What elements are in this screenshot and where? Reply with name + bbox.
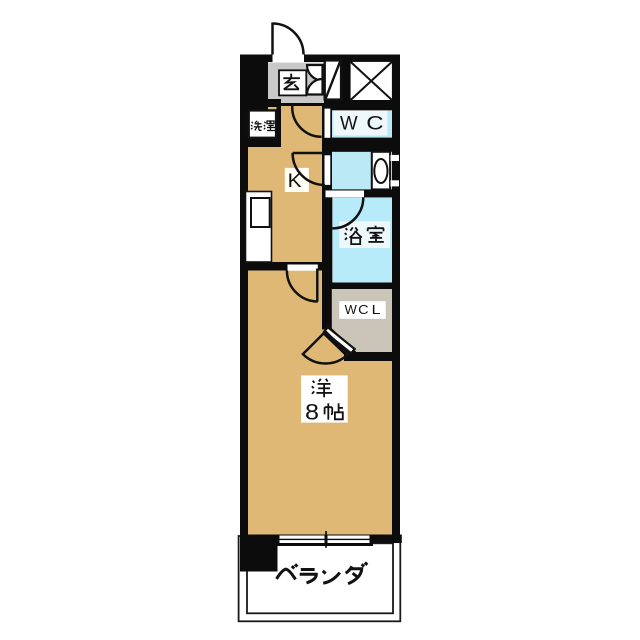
svg-text:C: C xyxy=(366,114,383,135)
svg-text:W: W xyxy=(345,302,358,317)
svg-text:K: K xyxy=(288,170,302,192)
svg-text:C: C xyxy=(358,302,369,317)
svg-text:8: 8 xyxy=(305,399,319,424)
svg-text:W: W xyxy=(340,114,358,135)
svg-text:L: L xyxy=(372,302,381,317)
